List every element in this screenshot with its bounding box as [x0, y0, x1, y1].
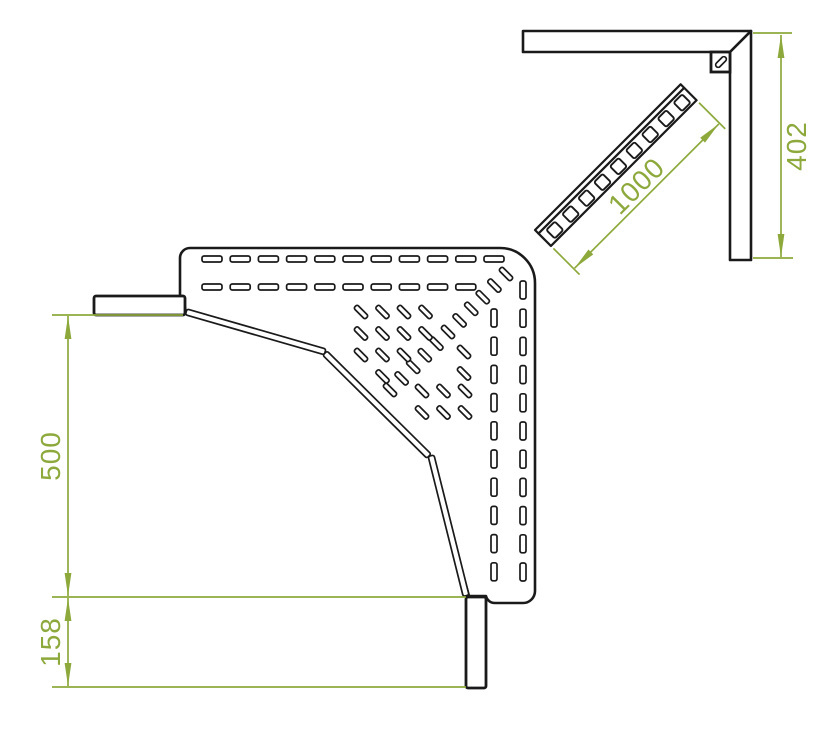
perforation-slot — [491, 394, 497, 412]
perforation-slot — [456, 284, 476, 290]
arrow-left-icon — [572, 250, 593, 271]
ext-line-end — [699, 103, 725, 129]
perforation-slot — [428, 284, 448, 290]
perforation-slot — [491, 337, 497, 355]
perforation-slot — [315, 284, 335, 290]
perforation-slot — [520, 450, 526, 468]
perforation-slot — [520, 535, 526, 553]
perforation-slot — [520, 366, 526, 384]
arrow-up-icon — [65, 316, 72, 339]
perforation-slot — [520, 394, 526, 412]
ext-line-start — [553, 248, 579, 274]
perforation-slot — [491, 563, 497, 581]
dim-label-500: 500 — [35, 431, 66, 481]
tray-plate-outline — [180, 248, 535, 603]
perforation-slot — [520, 507, 526, 525]
perforation-slot — [287, 256, 307, 262]
strut-rung-holes — [546, 94, 690, 238]
perforation-slot — [315, 256, 335, 262]
dim-label-402: 402 — [781, 121, 812, 171]
perforation-slot — [399, 284, 419, 290]
perforation-slot — [202, 284, 222, 290]
perforation-slot — [202, 256, 222, 262]
corner-tray-top-view: 500 158 — [35, 248, 535, 688]
arrow-up-icon — [778, 35, 785, 58]
perforation-slot — [520, 337, 526, 355]
perforation-slot — [230, 284, 250, 290]
dim-label-158: 158 — [35, 617, 66, 667]
perforation-slot — [258, 256, 278, 262]
perforation-slot — [491, 450, 497, 468]
left-connector-flange — [94, 296, 185, 315]
technical-drawing-canvas: 500 158 — [0, 0, 835, 742]
perforation-slot — [520, 422, 526, 440]
bottom-connector-flange — [466, 597, 486, 688]
perforation-slot — [428, 256, 448, 262]
dimension-402: 402 — [753, 33, 812, 258]
perforation-slot — [520, 563, 526, 581]
perforation-slot — [520, 281, 526, 299]
perforation-slot — [520, 309, 526, 327]
arrow-down-icon — [65, 573, 72, 596]
strut-edge-strip — [535, 84, 684, 233]
perforation-slot — [343, 256, 363, 262]
perforation-slot — [520, 478, 526, 496]
perforation-slot — [491, 506, 497, 524]
perforation-slot — [371, 256, 391, 262]
perforation-slot — [484, 256, 504, 262]
perforation-slot — [399, 256, 419, 262]
bracket-horizontal-arm — [523, 31, 751, 52]
perforation-slot — [491, 478, 497, 496]
arrow-down-icon — [778, 234, 785, 257]
perforation-slot — [287, 284, 307, 290]
perforation-slot — [343, 284, 363, 290]
perforation-slot — [491, 365, 497, 383]
dimension-158: 158 — [35, 598, 466, 687]
perforation-slot — [371, 284, 391, 290]
perforation-slot — [491, 309, 497, 327]
bracket-vertical-arm — [730, 31, 751, 260]
perforation-slot — [491, 535, 497, 553]
perforation-slot — [230, 256, 250, 262]
perforation-slot — [456, 256, 476, 262]
diagonal-strut: 1000 — [535, 84, 725, 274]
perforation-slot — [491, 422, 497, 440]
technical-drawing-page: 500 158 — [0, 0, 835, 742]
perforation-slot — [258, 284, 278, 290]
arrow-right-icon — [700, 122, 721, 143]
mounting-bracket-side-view: 1000 402 — [523, 31, 812, 275]
